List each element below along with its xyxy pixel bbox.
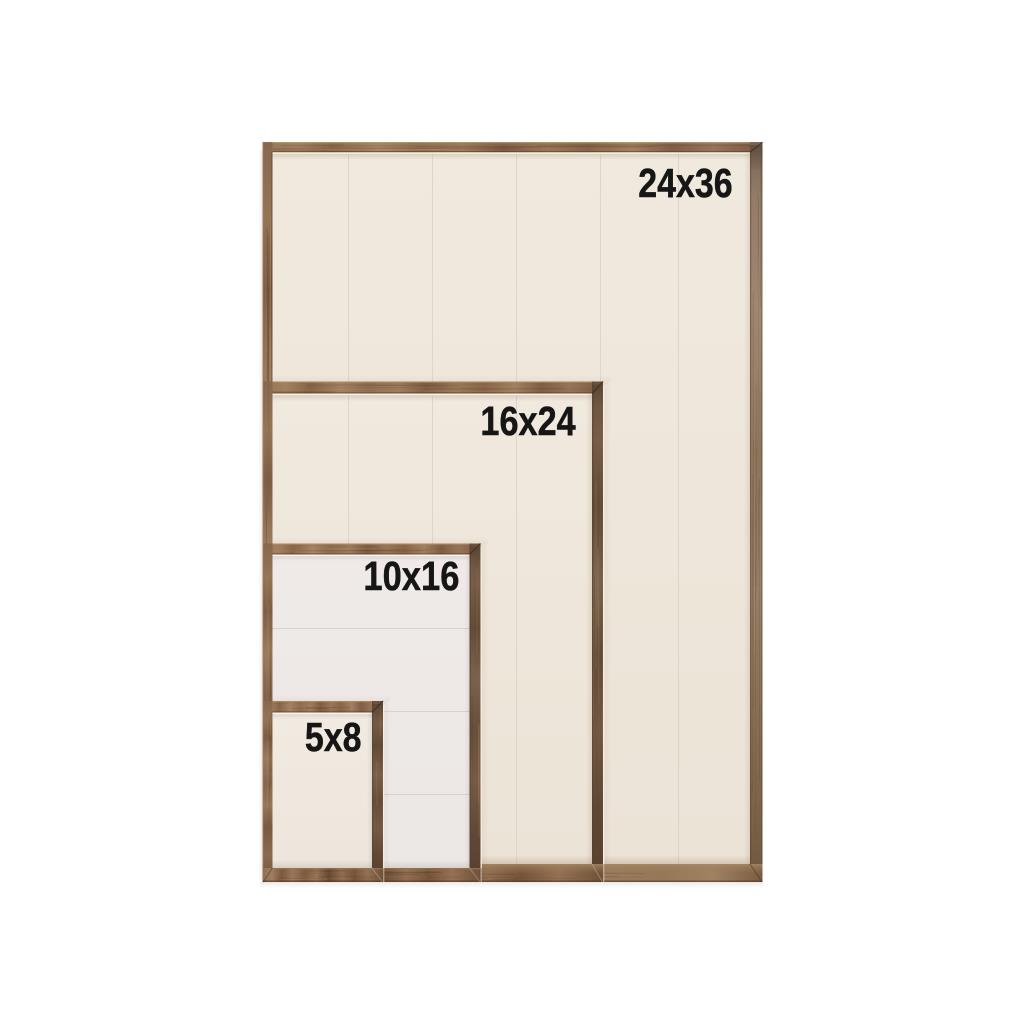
svg-text:10x16: 10x16 [363, 553, 459, 599]
svg-text:24x36: 24x36 [638, 160, 732, 206]
svg-text:5x8: 5x8 [305, 714, 362, 760]
svg-text:16x24: 16x24 [480, 398, 575, 444]
